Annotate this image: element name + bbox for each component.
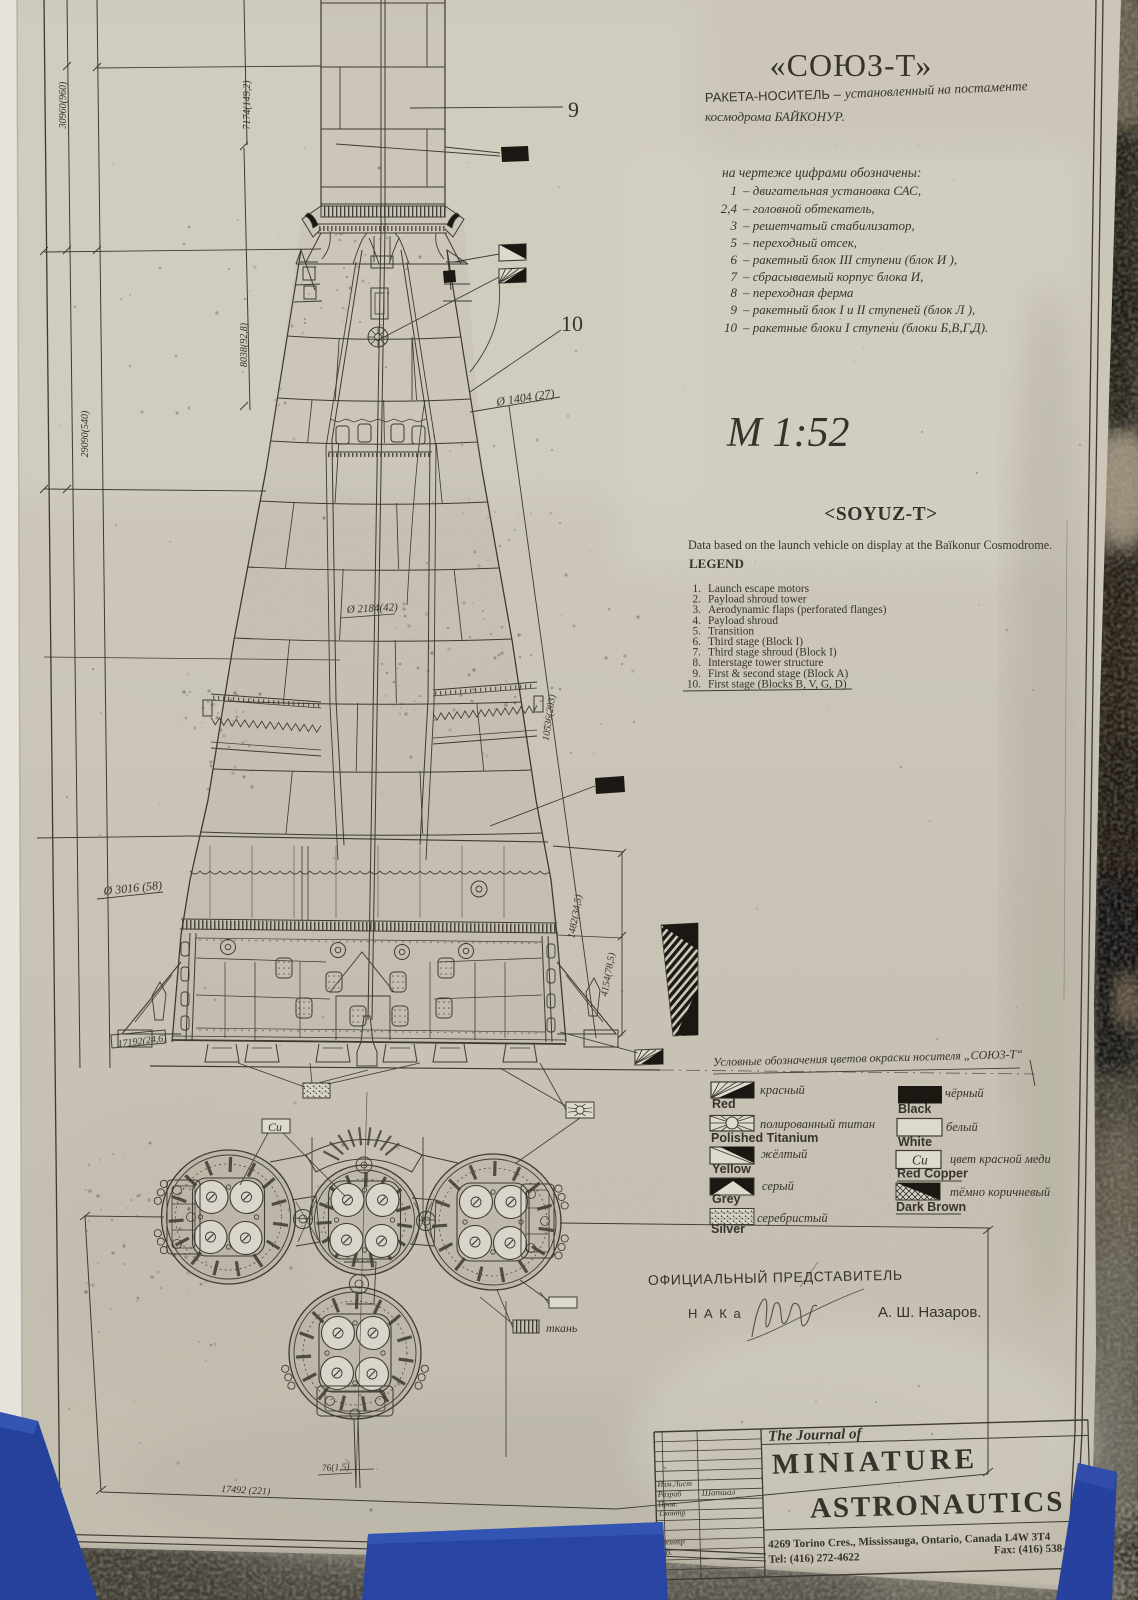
svg-text:ткань: ткань — [546, 1321, 578, 1335]
svg-text:– двигательная установка САС,: – двигательная установка САС, — [742, 183, 921, 198]
svg-text:цвет красной меди: цвет красной меди — [950, 1152, 1051, 1166]
svg-text:8: 8 — [731, 285, 738, 300]
svg-text:– переходная ферма: – переходная ферма — [742, 285, 854, 300]
svg-text:Silver: Silver — [711, 1222, 745, 1236]
svg-text:<SOYUZ-T>: <SOYUZ-T> — [824, 504, 937, 525]
svg-text:белый: белый — [946, 1120, 978, 1134]
svg-text:Red: Red — [712, 1097, 736, 1111]
svg-text:серебристый: серебристый — [757, 1211, 828, 1225]
svg-text:космодрома БАЙКОНУР.: космодрома БАЙКОНУР. — [705, 109, 845, 124]
svg-text:Red Copper: Red Copper — [897, 1167, 968, 1181]
svg-text:Т.контр: Т.контр — [658, 1508, 685, 1518]
svg-text:– переходный отсек,: – переходный отсек, — [742, 235, 857, 250]
svg-text:Black: Black — [898, 1102, 931, 1116]
svg-text:9: 9 — [568, 97, 579, 122]
svg-text:The Journal of: The Journal of — [768, 1426, 864, 1445]
svg-text:2,4: 2,4 — [721, 201, 738, 216]
svg-text:А. Ш. Назаров.: А. Ш. Назаров. — [878, 1304, 981, 1321]
svg-text:– ракетный блок III ступени (: – ракетный блок III ступени (блок И ), — [742, 252, 957, 267]
svg-text:9: 9 — [731, 302, 738, 317]
svg-text:жёлтый: жёлтый — [761, 1147, 808, 1161]
svg-text:полированный титан: полированный титан — [760, 1117, 875, 1131]
svg-text:Cu: Cu — [268, 1120, 282, 1134]
svg-text:Tel: (416) 272-4622: Tel: (416) 272-4622 — [768, 1551, 860, 1566]
svg-text:First stage (Blocks B, V, G, D: First stage (Blocks B, V, G, D) — [708, 678, 847, 690]
svg-text:тёмно коричневый: тёмно коричневый — [950, 1185, 1051, 1199]
svg-text:Yellow: Yellow — [712, 1162, 751, 1176]
svg-text:5: 5 — [731, 235, 738, 250]
svg-text:на чертеже цифрами обозначены:: на чертеже цифрами обозначены: — [722, 165, 921, 180]
svg-text:1: 1 — [731, 183, 738, 198]
svg-text:М 1:52: М 1:52 — [726, 410, 849, 456]
svg-text:30960(960): 30960(960) — [58, 81, 69, 129]
svg-text:Data based on the launch vehic: Data based on the launch vehicle on disp… — [688, 538, 1052, 552]
svg-text:Разраб: Разраб — [657, 1489, 683, 1499]
svg-text:White: White — [898, 1135, 932, 1149]
svg-text:76(1,5): 76(1,5) — [322, 1462, 350, 1474]
svg-text:«СОЮЗ-Т»: «СОЮЗ-Т» — [770, 47, 933, 83]
svg-text:MINIATURE: MINIATURE — [771, 1443, 978, 1481]
svg-text:29090(540): 29090(540) — [80, 410, 91, 457]
svg-text:красный: красный — [760, 1083, 806, 1097]
svg-text:Grey: Grey — [712, 1192, 741, 1206]
svg-text:10: 10 — [724, 320, 738, 335]
svg-text:Н А К а: Н А К а — [688, 1306, 742, 1321]
svg-text:– сбрасываемый корпус блока: – сбрасываемый корпус блока И, — [742, 269, 923, 284]
svg-text:7: 7 — [731, 269, 738, 284]
svg-text:LEGEND: LEGEND — [689, 556, 744, 571]
svg-text:– ракетные блоки I ступени: – ракетные блоки I ступени (блоки Б,В,Г,… — [742, 320, 988, 335]
svg-text:10: 10 — [561, 311, 583, 336]
svg-text:нонтр: нонтр — [663, 1537, 685, 1547]
svg-text:серый: серый — [762, 1179, 795, 1193]
svg-text:Изм.Лист: Изм.Лист — [656, 1479, 692, 1489]
svg-text:8038(92,8): 8038(92,8) — [239, 322, 250, 367]
svg-text:– решетчатый стабилизатор,: – решетчатый стабилизатор, — [742, 218, 915, 233]
svg-text:Шапшал: Шапшал — [701, 1487, 736, 1498]
svg-text:7174(149,2): 7174(149,2) — [242, 80, 253, 130]
svg-text:Polished Titanium: Polished Titanium — [711, 1131, 818, 1145]
svg-text:– ракетный блок I и II ступе: – ракетный блок I и II ступеней (блок Л … — [742, 302, 975, 317]
svg-text:Cu: Cu — [912, 1153, 928, 1168]
svg-text:Dark Brown: Dark Brown — [896, 1200, 966, 1214]
svg-text:чёрный: чёрный — [945, 1086, 984, 1100]
svg-text:10.: 10. — [687, 678, 701, 690]
svg-text:В.: В. — [665, 1548, 672, 1557]
svg-text:6: 6 — [731, 252, 738, 267]
svg-text:– головной обтекатель,: – головной обтекатель, — [742, 201, 875, 216]
svg-text:3: 3 — [730, 218, 738, 233]
